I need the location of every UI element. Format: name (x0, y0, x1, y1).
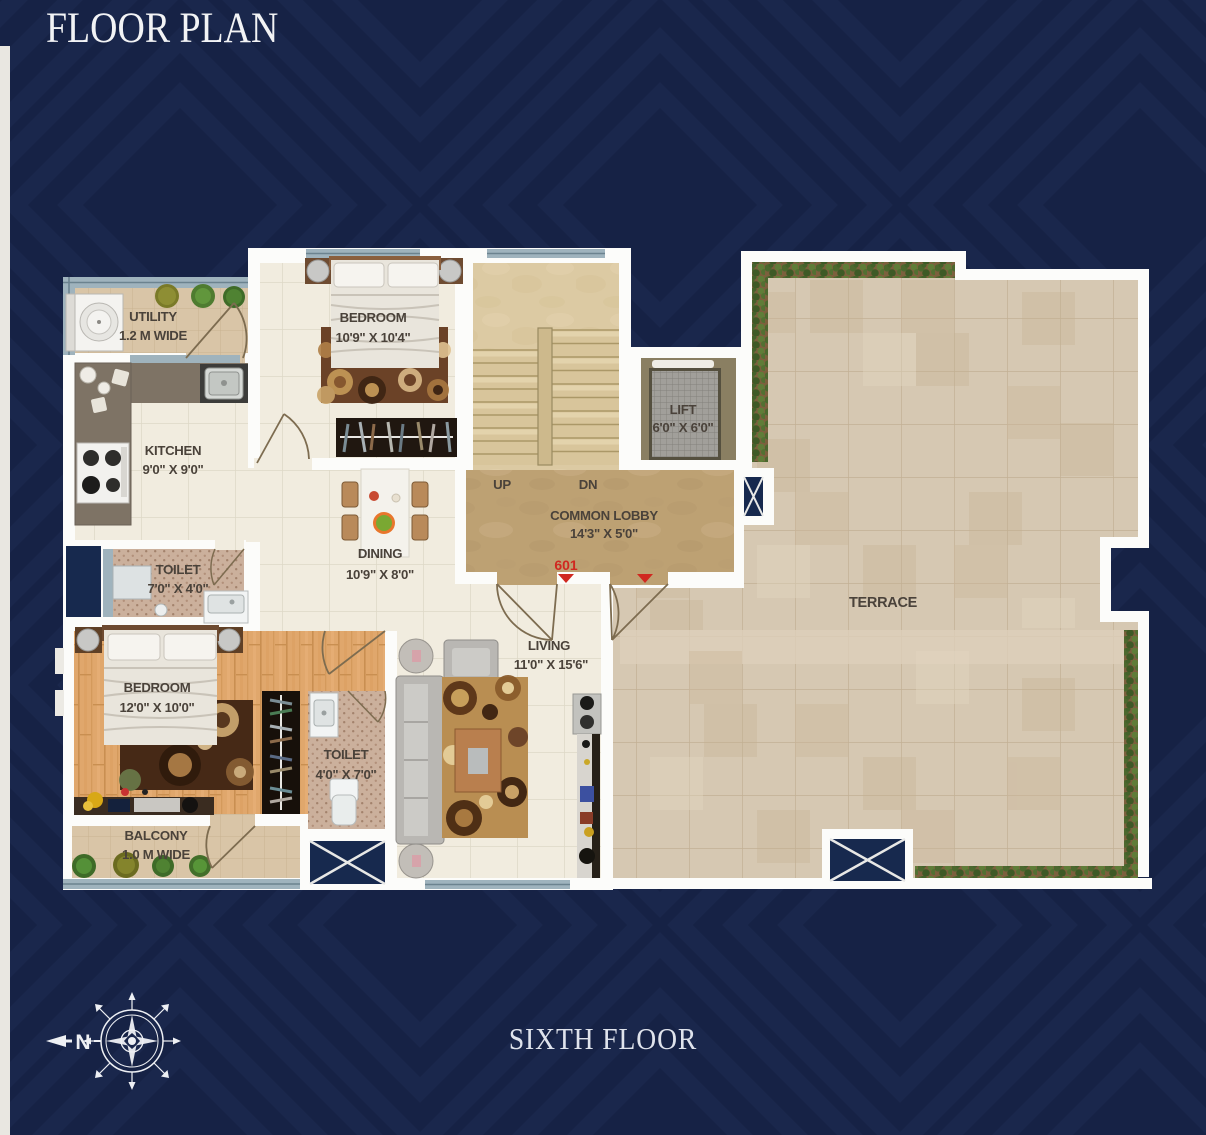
svg-text:TOILET: TOILET (156, 562, 201, 577)
svg-text:LIFT: LIFT (670, 402, 697, 417)
svg-text:TERRACE: TERRACE (849, 595, 918, 611)
svg-text:10'9" X 8'0": 10'9" X 8'0" (346, 567, 414, 582)
svg-text:BEDROOM: BEDROOM (124, 680, 191, 695)
svg-text:TOILET: TOILET (324, 747, 369, 762)
svg-text:12'0" X 10'0": 12'0" X 10'0" (119, 700, 194, 715)
svg-text:10'9" X 10'4": 10'9" X 10'4" (335, 330, 410, 345)
svg-text:BALCONY: BALCONY (124, 828, 188, 843)
svg-text:9'0" X 9'0": 9'0" X 9'0" (143, 462, 204, 477)
svg-text:DINING: DINING (358, 546, 402, 561)
svg-text:1.0 M WIDE: 1.0 M WIDE (122, 847, 191, 862)
svg-text:LIVING: LIVING (528, 638, 570, 653)
svg-text:DN: DN (579, 477, 597, 492)
svg-text:KITCHEN: KITCHEN (145, 443, 202, 458)
svg-text:14'3" X 5'0": 14'3" X 5'0" (570, 526, 638, 541)
svg-text:11'0" X 15'6": 11'0" X 15'6" (514, 657, 588, 672)
svg-text:4'0" X 7'0": 4'0" X 7'0" (316, 767, 377, 782)
svg-text:BEDROOM: BEDROOM (340, 310, 407, 325)
svg-text:UTILITY: UTILITY (129, 309, 177, 324)
svg-text:COMMON LOBBY: COMMON LOBBY (550, 508, 658, 523)
svg-text:7'0" X 4'0": 7'0" X 4'0" (148, 581, 209, 596)
svg-text:601: 601 (554, 557, 578, 573)
svg-text:6'0" X 6'0": 6'0" X 6'0" (653, 420, 714, 435)
svg-text:UP: UP (493, 477, 511, 492)
svg-text:1.2 M WIDE: 1.2 M WIDE (119, 328, 188, 343)
